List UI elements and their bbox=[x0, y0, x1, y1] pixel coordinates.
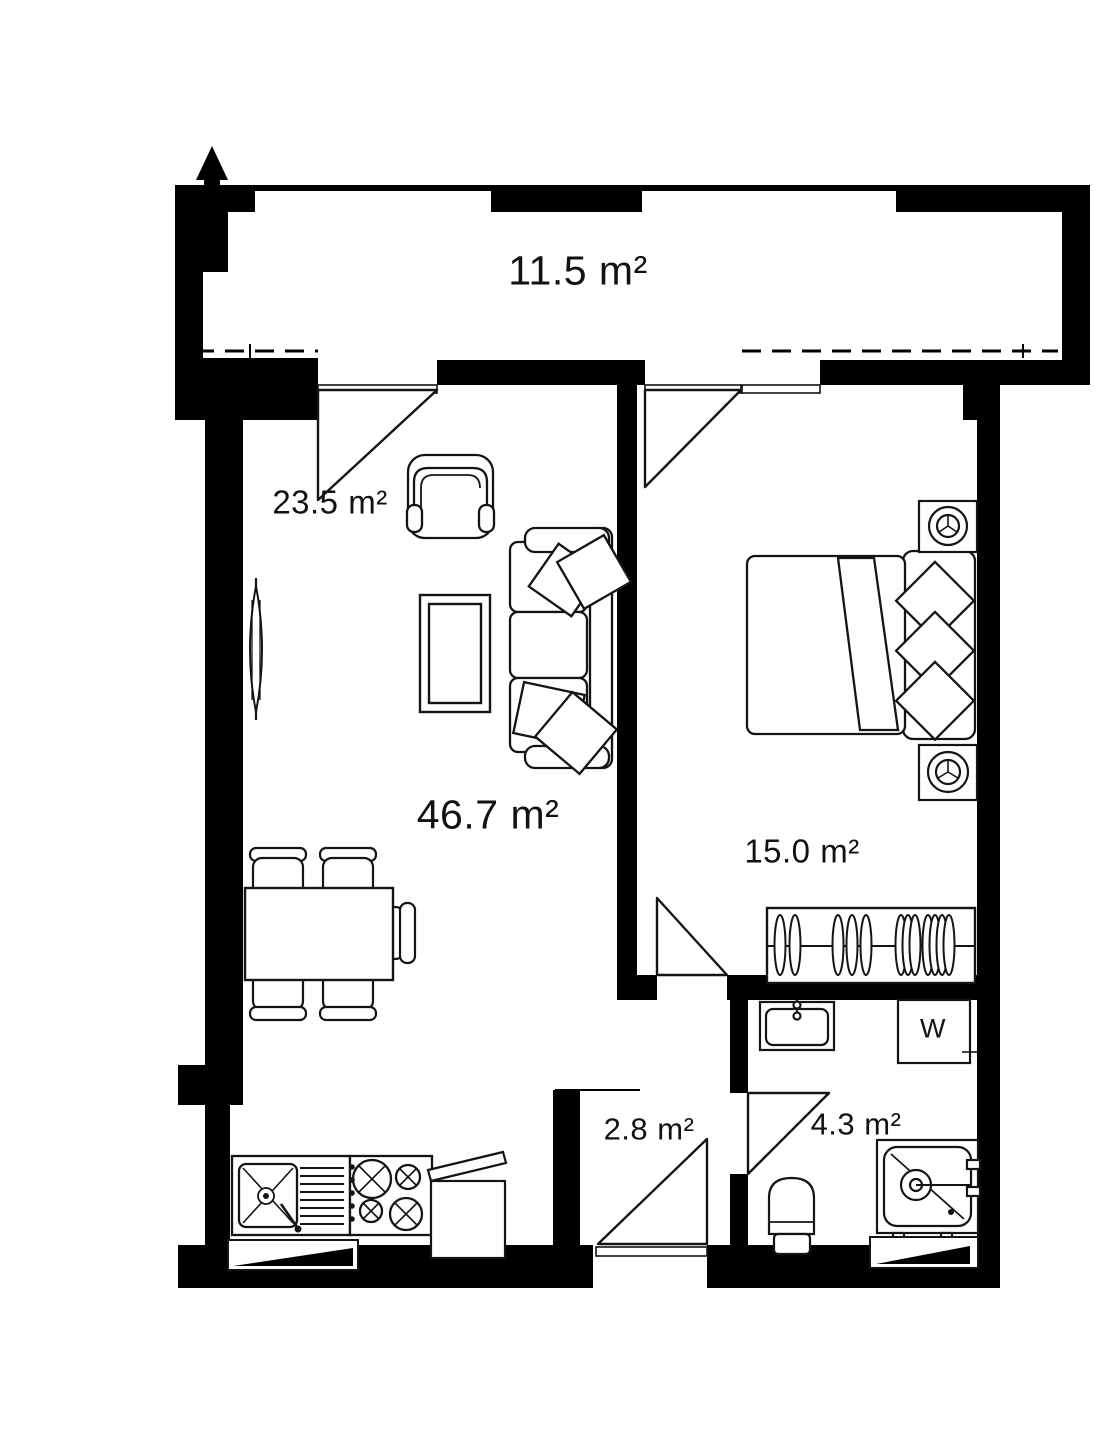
threshold-entrance bbox=[596, 1247, 707, 1256]
bedroom-area-label: 15.0 m² bbox=[744, 835, 859, 868]
entrance-door bbox=[598, 1139, 707, 1244]
shower-cabin bbox=[877, 1140, 980, 1240]
washer-label: W bbox=[920, 1016, 946, 1043]
facade-wall-left-block bbox=[175, 358, 318, 420]
radiator bbox=[250, 578, 262, 720]
kitchen-sink bbox=[232, 1156, 350, 1235]
facade-wall-mid bbox=[437, 360, 645, 385]
wall-left-outer-upper bbox=[205, 420, 243, 1070]
armchair bbox=[407, 455, 494, 538]
window-bedroom-top bbox=[742, 385, 820, 393]
coffee-table bbox=[420, 595, 490, 712]
wall-right-outer bbox=[977, 400, 1000, 1288]
wall-left-step bbox=[178, 1065, 243, 1105]
bathroom-area-label: 4.3 m² bbox=[811, 1109, 902, 1140]
nightstand-lamp-top bbox=[919, 501, 977, 552]
stove bbox=[349, 1156, 432, 1235]
wardrobe bbox=[767, 908, 975, 983]
bed-pillows bbox=[896, 562, 974, 740]
nightstand-lamp-bottom bbox=[919, 745, 977, 800]
balcony-wall-left bbox=[175, 185, 203, 363]
hallway-area-label: 2.8 m² bbox=[604, 1114, 695, 1145]
sofa bbox=[510, 528, 631, 774]
wall-top-right bbox=[896, 185, 1090, 212]
north-arrow-shaft bbox=[204, 172, 220, 224]
wall-bedroom-bottom-left bbox=[617, 975, 657, 1000]
wall-bathroom-lower bbox=[730, 1174, 748, 1249]
floor-plan-drawing bbox=[0, 0, 1113, 1440]
balcony-area-label: 11.5 m² bbox=[508, 251, 647, 292]
balcony-window-top-left bbox=[253, 185, 493, 191]
facade-wall-right bbox=[820, 360, 1090, 385]
wall-bathroom-upper bbox=[730, 1000, 748, 1093]
balcony-bedroom-door bbox=[645, 390, 741, 487]
wall-living-bedroom bbox=[617, 360, 637, 1000]
toilet bbox=[769, 1178, 814, 1254]
double-bed bbox=[747, 551, 975, 740]
wall-top-mid bbox=[491, 185, 642, 212]
kitchen-counter bbox=[428, 1152, 506, 1258]
bedroom-door bbox=[657, 898, 727, 975]
dining-table bbox=[245, 888, 393, 980]
living-room-area-label: 46.7 m² bbox=[417, 795, 560, 836]
living-zone-area-label: 23.5 m² bbox=[272, 486, 387, 519]
bathroom-sink bbox=[760, 999, 834, 1050]
balcony-wall-right bbox=[1062, 185, 1090, 385]
floor-plan: 11.5 m² 23.5 m² 46.7 m² 15.0 m² 2.8 m² 4… bbox=[0, 0, 1113, 1440]
balcony-window-top-right bbox=[640, 185, 898, 191]
